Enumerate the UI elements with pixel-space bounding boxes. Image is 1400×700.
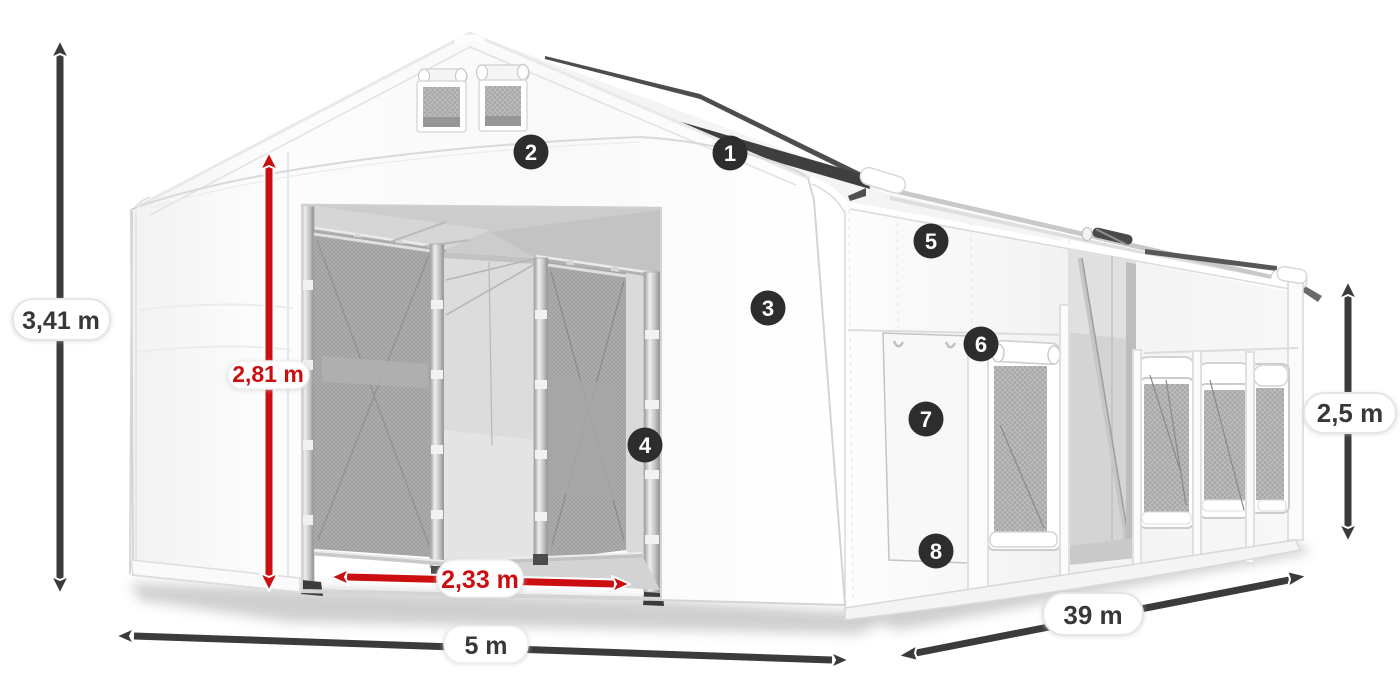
svg-text:7: 7 bbox=[920, 407, 932, 432]
svg-text:39 m: 39 m bbox=[1063, 600, 1122, 630]
svg-text:3,41 m: 3,41 m bbox=[22, 307, 100, 335]
svg-text:6: 6 bbox=[975, 332, 987, 357]
svg-text:3: 3 bbox=[762, 296, 774, 321]
svg-text:2,5 m: 2,5 m bbox=[1317, 398, 1384, 428]
svg-text:2,81 m: 2,81 m bbox=[232, 361, 304, 387]
svg-text:5: 5 bbox=[925, 229, 937, 254]
svg-text:8: 8 bbox=[930, 539, 942, 564]
svg-text:2: 2 bbox=[525, 140, 537, 165]
svg-text:5 m: 5 m bbox=[464, 632, 507, 660]
svg-text:2,33 m: 2,33 m bbox=[441, 566, 519, 594]
svg-text:4: 4 bbox=[639, 433, 652, 458]
svg-text:1: 1 bbox=[724, 141, 736, 166]
